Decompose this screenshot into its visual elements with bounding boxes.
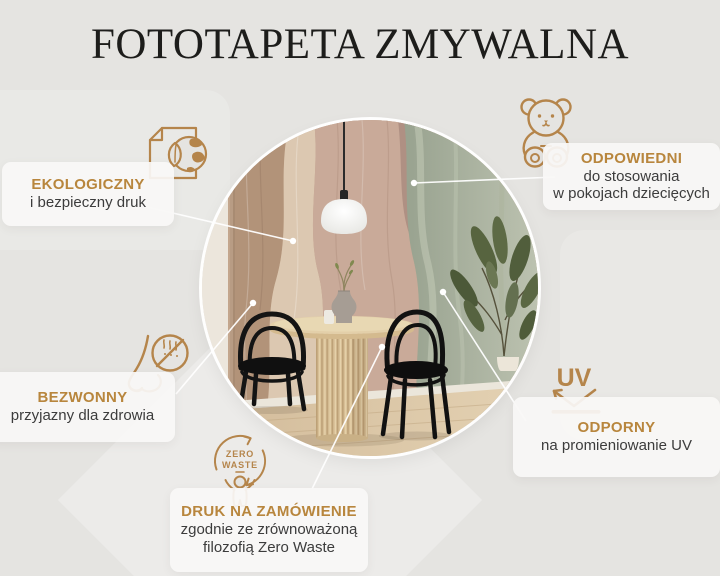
zero-waste-text-top: ZERO: [226, 449, 254, 459]
infographic-canvas: FOTOTAPETA ZMYWALNA: [0, 0, 720, 576]
callout-line: i bezpieczny druk: [30, 194, 146, 212]
callout-title: DRUK NA ZAMÓWIENIE: [181, 503, 357, 521]
callout-odpowiedni: ODPOWIEDNI do stosowania w pokojach dzie…: [543, 143, 720, 210]
callout-line: zgodnie ze zrównoważoną: [181, 521, 358, 539]
callout-title: ODPORNY: [578, 419, 656, 437]
room-photo-circle: [202, 120, 538, 456]
callout-line: przyjazny dla zdrowia: [11, 407, 154, 425]
callout-line: do stosowania: [584, 168, 680, 186]
callout-line: filozofią Zero Waste: [203, 539, 335, 557]
callout-druk-na-zamowienie: DRUK NA ZAMÓWIENIE zgodnie ze zrównoważo…: [170, 488, 368, 572]
baseboard: [202, 406, 233, 415]
callout-line: w pokojach dziecięcych: [553, 185, 710, 203]
callout-line: na promieniowanie UV: [541, 437, 692, 455]
callout-title: EKOLOGICZNY: [31, 176, 144, 194]
callout-odporny: ODPORNY na promieniowanie UV: [513, 397, 720, 477]
callout-ekologiczny: EKOLOGICZNY i bezpieczny druk: [2, 162, 174, 226]
room-photo: [202, 120, 538, 456]
callout-bezwonny: BEZWONNY przyjazny dla zdrowia: [0, 372, 175, 442]
uv-label: UV: [557, 364, 592, 392]
zero-waste-text-bottom: WASTE: [222, 460, 258, 470]
callout-title: BEZWONNY: [38, 389, 128, 407]
callout-title: ODPOWIEDNI: [581, 150, 682, 168]
page-title: FOTOTAPETA ZMYWALNA: [0, 20, 720, 69]
